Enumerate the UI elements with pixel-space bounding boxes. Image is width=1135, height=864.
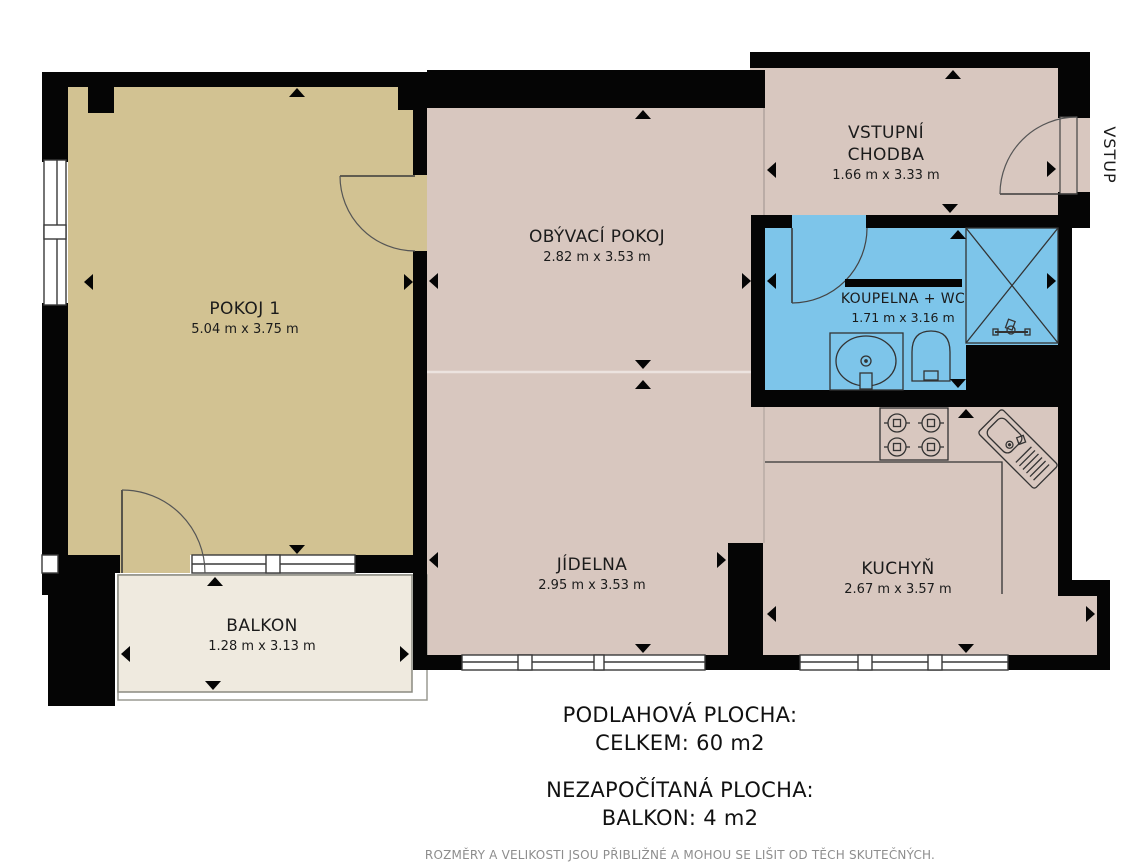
wall-right-step bbox=[1058, 580, 1110, 596]
window-pokoj1-balcony bbox=[192, 555, 355, 573]
wall-pokoj1-bottom-left bbox=[58, 555, 120, 573]
wall-koupelna-left bbox=[751, 215, 765, 407]
floor-area-title: PODLAHOVÁ PLOCHA: bbox=[380, 702, 980, 730]
floor-area-value: CELKEM: 60 m2 bbox=[380, 730, 980, 758]
wall-pokoj1-top bbox=[42, 72, 427, 87]
balcony bbox=[118, 575, 427, 700]
opening-pokoj1-door bbox=[413, 175, 427, 251]
wall-right-below-door bbox=[1058, 192, 1090, 228]
opening-koupelna-door bbox=[792, 215, 866, 228]
wall-obyvaci-top bbox=[427, 70, 765, 108]
wall-bottom-3 bbox=[1008, 655, 1110, 670]
wall-koupelna-bottom bbox=[751, 390, 1058, 407]
window-pokoj1-bottom-end bbox=[42, 555, 58, 573]
summary-spacer bbox=[380, 757, 980, 777]
floorplan-page: POKOJ 1 5.04 m x 3.75 m OBÝVACÍ POKOJ 2.… bbox=[0, 0, 1135, 864]
wall-bottom-2 bbox=[705, 655, 800, 670]
floorplan-drawing bbox=[0, 0, 1135, 710]
opening-balcony-door bbox=[120, 555, 190, 573]
wall-chodba-top bbox=[750, 52, 1090, 68]
wall-pokoj1-obyvaci-upper bbox=[413, 87, 427, 175]
wall-right-bath-kitchen bbox=[1058, 228, 1072, 580]
wall-koupelna-block bbox=[966, 345, 1058, 390]
wall-bottom-1 bbox=[427, 655, 462, 670]
wall-left-lower bbox=[42, 303, 68, 595]
disclaimer-text: ROZMĚRY A VELIKOSTI JSOU PŘIBLIŽNÉ A MOH… bbox=[380, 848, 980, 862]
wall-left-upper bbox=[42, 72, 68, 162]
floor-pokoj1 bbox=[68, 87, 413, 555]
wall-pokoj1-obyvaci-lower bbox=[413, 251, 427, 670]
floor-obyvaci-jidelna bbox=[427, 108, 765, 655]
wall-right-top-block bbox=[1058, 55, 1090, 118]
excluded-area-title: NEZAPOČÍTANÁ PLOCHA: bbox=[380, 777, 980, 805]
wall-pokoj1-bottom-right bbox=[355, 555, 413, 573]
towel-rail bbox=[845, 279, 962, 287]
wall-balcony-column bbox=[48, 572, 115, 706]
wall-pillar-pokoj1 bbox=[88, 87, 114, 113]
excluded-area-value: BALKON: 4 m2 bbox=[380, 805, 980, 833]
floor-kuchyn bbox=[765, 407, 1058, 655]
floor-chodba bbox=[750, 68, 1090, 228]
window-jidelna bbox=[462, 655, 705, 670]
entrance-label: VSTUP bbox=[1101, 115, 1119, 195]
wall-jidelna-kuchyn-stub bbox=[728, 543, 763, 655]
window-kuchyn bbox=[800, 655, 1008, 670]
balcony-floor bbox=[118, 575, 412, 692]
window-pokoj1-left bbox=[44, 160, 66, 305]
area-summary: PODLAHOVÁ PLOCHA: CELKEM: 60 m2 NEZAPOČÍ… bbox=[380, 702, 980, 862]
floor-kuchyn-extension bbox=[1058, 596, 1097, 655]
